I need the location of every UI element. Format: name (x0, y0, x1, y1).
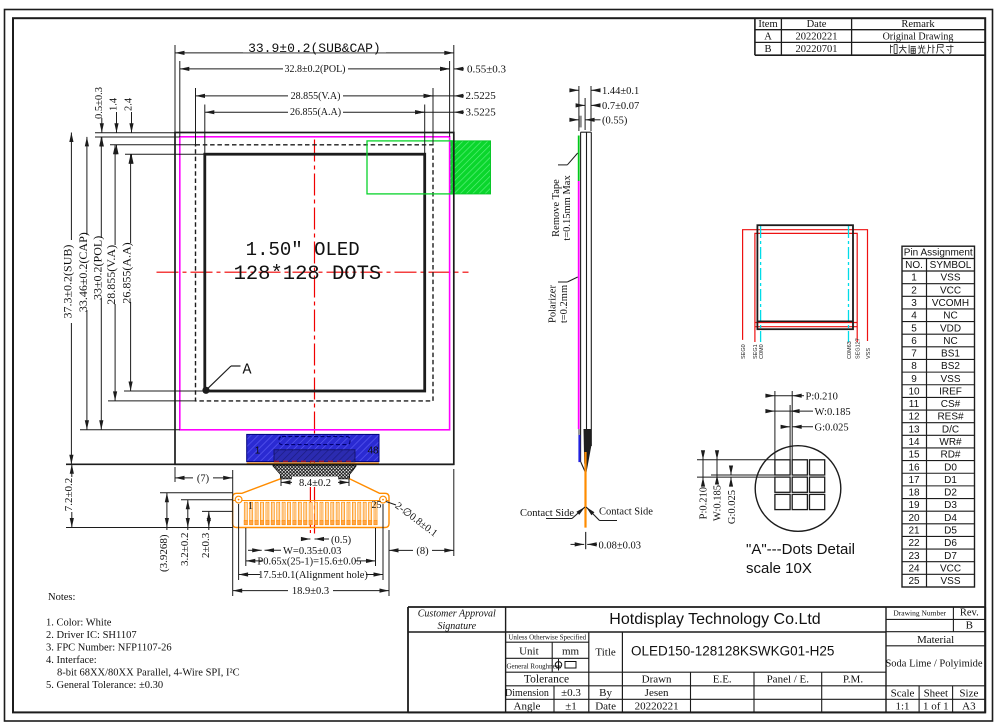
svg-text:12: 12 (908, 412, 920, 423)
svg-text:1.50″ OLED: 1.50″ OLED (246, 239, 360, 261)
svg-text:Notes:: Notes: (48, 592, 75, 603)
svg-text:19: 19 (908, 500, 920, 511)
svg-text:1. Color: White: 1. Color: White (46, 618, 112, 629)
svg-text:22: 22 (908, 538, 920, 549)
svg-text:(0.55): (0.55) (602, 116, 628, 127)
svg-text:t=0.2mm: t=0.2mm (559, 285, 570, 323)
svg-text:P.M.: P.M. (843, 674, 863, 686)
svg-text:NO.: NO. (905, 260, 923, 271)
svg-text:14: 14 (908, 437, 920, 448)
svg-text:B: B (764, 44, 771, 55)
svg-text:1:1: 1:1 (895, 701, 909, 713)
svg-text:NC: NC (943, 336, 957, 347)
svg-text:1.4: 1.4 (109, 97, 120, 111)
svg-text:18.9±0.3: 18.9±0.3 (292, 586, 329, 597)
svg-text:32.8±0.2(POL): 32.8±0.2(POL) (284, 64, 345, 75)
svg-text:CS#: CS# (941, 399, 961, 410)
svg-text:Original Drawing: Original Drawing (883, 31, 954, 42)
svg-text:Tolerance: Tolerance (524, 674, 569, 686)
svg-text:BS1: BS1 (941, 349, 960, 360)
svg-text:28.855(V.A): 28.855(V.A) (104, 245, 118, 305)
svg-text:VSS: VSS (866, 348, 872, 359)
svg-text:13: 13 (908, 424, 920, 435)
svg-text:SEG127: SEG127 (856, 338, 862, 359)
svg-text:3: 3 (911, 298, 917, 309)
svg-text:P:0.210: P:0.210 (699, 487, 710, 519)
svg-text:2.5225: 2.5225 (466, 90, 497, 102)
svg-text:D1: D1 (944, 475, 957, 486)
svg-text:(0.5): (0.5) (331, 535, 352, 546)
svg-text:VSS: VSS (940, 576, 960, 587)
svg-text:2±0.3: 2±0.3 (200, 532, 212, 558)
svg-text:C0M63: C0M63 (847, 341, 853, 359)
svg-text:18: 18 (908, 488, 920, 499)
svg-text:Jesen: Jesen (645, 687, 669, 699)
svg-text:0.08±0.03: 0.08±0.03 (599, 540, 642, 551)
svg-text:7.2±0.2: 7.2±0.2 (63, 478, 75, 512)
svg-text:By: By (599, 687, 612, 699)
svg-text:Hotdisplay Technology Co.Ltd: Hotdisplay Technology Co.Ltd (609, 611, 820, 628)
svg-text:t=0.15mm Max: t=0.15mm Max (562, 175, 573, 241)
svg-text:8: 8 (911, 361, 917, 372)
svg-text:1: 1 (911, 273, 917, 284)
svg-text:A3: A3 (962, 701, 976, 713)
svg-text:26.855(A.A): 26.855(A.A) (290, 107, 341, 118)
svg-text:15: 15 (908, 450, 920, 461)
svg-text:28.855(V.A): 28.855(V.A) (291, 91, 341, 102)
svg-text:Rev.: Rev. (960, 608, 979, 619)
svg-text:33.46±0.2(CAP): 33.46±0.2(CAP) (76, 232, 90, 312)
svg-text:8.4±0.2: 8.4±0.2 (299, 478, 331, 489)
svg-text:10: 10 (908, 386, 920, 397)
svg-text:Date: Date (807, 19, 827, 30)
svg-text:W=0.35±0.03: W=0.35±0.03 (283, 546, 341, 557)
svg-text:G:0.025: G:0.025 (815, 423, 849, 434)
svg-text:Sheet: Sheet (924, 688, 948, 700)
svg-text:Remark: Remark (901, 19, 935, 30)
svg-text:Drawn: Drawn (642, 674, 672, 686)
svg-text:VDD: VDD (940, 323, 961, 334)
svg-text:Title: Title (595, 647, 616, 659)
svg-text:11: 11 (909, 399, 920, 410)
svg-text:1 of 1: 1 of 1 (923, 701, 949, 713)
svg-text:OLED150-128128KSWKG01-H25: OLED150-128128KSWKG01-H25 (631, 644, 834, 659)
svg-text:G:0.025: G:0.025 (727, 490, 738, 524)
svg-text:BS2: BS2 (941, 361, 960, 372)
svg-text:5. General Tolerance: ±0.30: 5. General Tolerance: ±0.30 (46, 680, 163, 691)
svg-text:128*128 DOTS: 128*128 DOTS (234, 263, 382, 286)
svg-text:16: 16 (908, 462, 920, 473)
svg-text:4. Interface:: 4. Interface: (46, 655, 97, 666)
svg-text:D3: D3 (944, 500, 957, 511)
svg-text:Scale: Scale (891, 688, 915, 700)
svg-text:W:0.185: W:0.185 (815, 407, 851, 418)
svg-text:33.9±0.2(SUB&CAP): 33.9±0.2(SUB&CAP) (248, 41, 381, 56)
svg-text:24: 24 (908, 563, 920, 574)
svg-text:"A"---Dots Detail: "A"---Dots Detail (746, 541, 855, 558)
svg-text:VSS: VSS (940, 273, 960, 284)
svg-text:Polarizer: Polarizer (548, 285, 559, 323)
svg-text:WR#: WR# (939, 437, 962, 448)
svg-text:21: 21 (908, 526, 920, 537)
svg-text:48: 48 (367, 446, 379, 457)
svg-text:33±0.2(POL): 33±0.2(POL) (90, 236, 104, 300)
svg-text:0.7±0.07: 0.7±0.07 (602, 101, 639, 112)
svg-text:General Roughness: General Roughness (507, 662, 562, 670)
svg-text:scale 10X: scale 10X (746, 560, 812, 577)
svg-text:Material: Material (917, 634, 954, 646)
svg-text:2. Driver IC: SH1107: 2. Driver IC: SH1107 (46, 630, 137, 641)
svg-text:±0.3: ±0.3 (561, 687, 581, 699)
svg-text:B: B (966, 620, 973, 632)
svg-text:1.44±0.1: 1.44±0.1 (602, 86, 639, 97)
svg-text:Contact Side: Contact Side (520, 508, 574, 519)
svg-text:A: A (242, 362, 251, 379)
svg-text:P:0.210: P:0.210 (806, 391, 838, 402)
svg-text:20220701: 20220701 (796, 44, 838, 55)
svg-text:D0: D0 (944, 462, 957, 473)
svg-text:Pin Assignment: Pin Assignment (904, 247, 973, 258)
svg-text:4: 4 (911, 311, 917, 322)
svg-text:25: 25 (908, 576, 920, 587)
svg-text:W:0.185: W:0.185 (713, 485, 724, 521)
svg-text:NC: NC (943, 311, 957, 322)
svg-text:Unit: Unit (519, 645, 539, 657)
svg-text:17.5±0.1(Alignment hole): 17.5±0.1(Alignment hole) (258, 570, 368, 581)
svg-text:0.55±0.3: 0.55±0.3 (467, 64, 507, 76)
svg-text:3. FPC Number: NFP1107-26: 3. FPC Number: NFP1107-26 (46, 643, 172, 654)
svg-text:17: 17 (908, 475, 920, 486)
svg-text:(3.9268): (3.9268) (158, 534, 170, 572)
svg-text:9: 9 (911, 374, 917, 385)
svg-text:23: 23 (908, 551, 920, 562)
svg-text:7: 7 (911, 349, 917, 360)
svg-text:5: 5 (911, 323, 917, 334)
svg-text:RES#: RES# (937, 412, 964, 423)
svg-text:IREF: IREF (939, 386, 962, 397)
svg-text:±1: ±1 (565, 701, 577, 713)
svg-text:3.2±0.2: 3.2±0.2 (179, 532, 191, 566)
svg-text:2: 2 (911, 285, 917, 296)
svg-text:20220221: 20220221 (796, 31, 838, 42)
svg-text:Remove Tape: Remove Tape (551, 179, 562, 237)
svg-text:Unless Otherwise Specified: Unless Otherwise Specified (508, 634, 586, 642)
svg-text:RD#: RD# (940, 450, 960, 461)
svg-text:Customer Approval: Customer Approval (418, 609, 496, 620)
svg-text:D4: D4 (944, 513, 957, 524)
svg-text:1: 1 (255, 446, 261, 457)
svg-text:20220221: 20220221 (635, 701, 679, 713)
svg-text:25: 25 (372, 500, 382, 511)
svg-text:Contact Side: Contact Side (599, 507, 653, 518)
svg-text:Signature: Signature (438, 621, 477, 632)
svg-text:A: A (764, 31, 772, 42)
svg-text:Size: Size (959, 688, 978, 700)
svg-text:20: 20 (908, 513, 920, 524)
svg-text:Date: Date (595, 701, 616, 713)
svg-text:D2: D2 (944, 488, 957, 499)
svg-text:8-bit 68XX/80XX Parallel, 4-Wi: 8-bit 68XX/80XX Parallel, 4-Wire SPI, I²… (57, 668, 240, 679)
svg-text:Drawing Number: Drawing Number (893, 609, 946, 618)
svg-text:0.5±0.3: 0.5±0.3 (94, 87, 105, 119)
svg-text:37.3±0.2(SUB): 37.3±0.2(SUB) (60, 245, 74, 319)
svg-text:VCC: VCC (940, 563, 961, 574)
svg-text:(7): (7) (197, 473, 210, 484)
svg-text:D6: D6 (944, 538, 957, 549)
svg-text:Soda Lime / Polyimide: Soda Lime / Polyimide (885, 659, 982, 670)
svg-text:Angle: Angle (514, 701, 541, 713)
svg-text:VCOMH: VCOMH (932, 298, 969, 309)
svg-text:E.E.: E.E. (713, 674, 732, 686)
svg-text:Dimension: Dimension (505, 688, 549, 699)
svg-text:VSS: VSS (940, 374, 960, 385)
svg-text:6: 6 (911, 336, 917, 347)
svg-text:Panel / E.: Panel / E. (767, 674, 810, 686)
svg-text:D7: D7 (944, 551, 957, 562)
svg-text:(8): (8) (416, 546, 429, 557)
svg-text:D5: D5 (944, 526, 957, 537)
svg-text:SEG0: SEG0 (741, 344, 747, 359)
svg-text:mm: mm (562, 645, 580, 657)
svg-text:P0.65x(25-1)=15.6±0.05: P0.65x(25-1)=15.6±0.05 (257, 557, 361, 568)
svg-text:C0M0: C0M0 (759, 344, 765, 359)
svg-text:26.855(A.A): 26.855(A.A) (120, 242, 134, 303)
svg-text:2.4: 2.4 (124, 97, 135, 111)
svg-text:1: 1 (248, 501, 253, 512)
svg-text:VCC: VCC (940, 285, 961, 296)
svg-text:SYMBOL: SYMBOL (930, 260, 972, 271)
svg-text:3.5225: 3.5225 (466, 106, 497, 118)
svg-text:Item: Item (758, 19, 777, 30)
svg-text:D/C: D/C (942, 424, 959, 435)
